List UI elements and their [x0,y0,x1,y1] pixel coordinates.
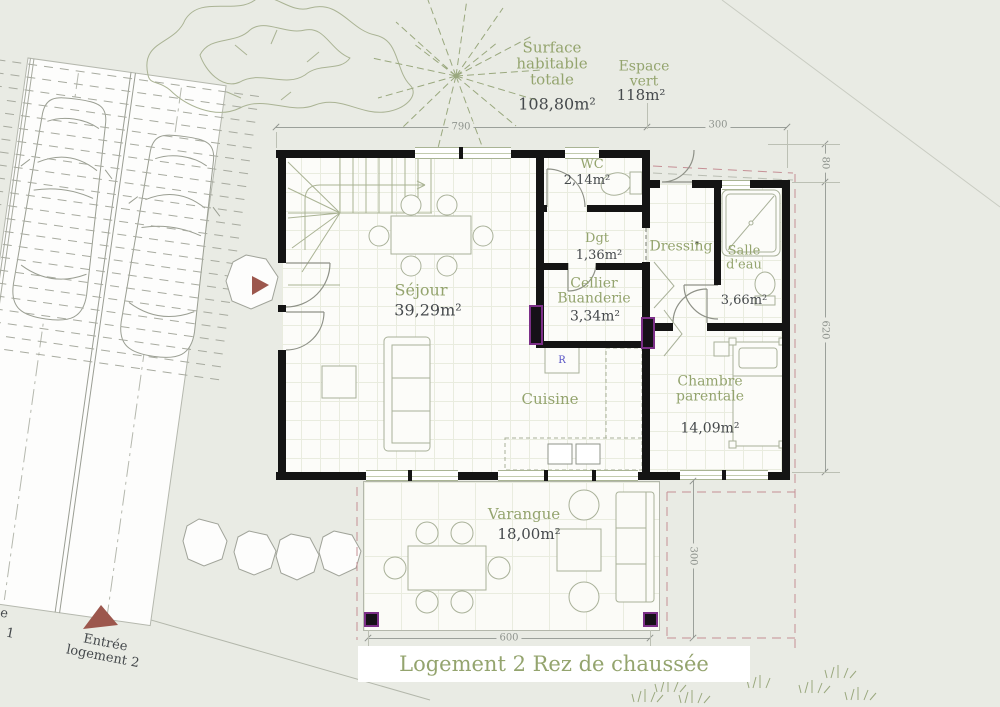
room-label-sejour: Séjour [395,283,448,300]
furniture-layer: R [0,0,1000,707]
dimension-line-right [825,144,826,472]
green-space-value: 118m² [617,88,666,104]
surface-total-label: Surface habitable totale [516,40,587,87]
window [415,147,511,159]
bedroom-door-swing [673,289,707,323]
outdoor-sofa [616,492,654,602]
wall [638,472,680,480]
wall [278,150,286,263]
extension-line [650,630,651,646]
room-label-dgt: Dgt [585,232,609,246]
wall [511,150,565,158]
dim-label-620: 620 [820,317,831,342]
extension-line [368,630,369,646]
wall [707,323,790,331]
room-area-varangue: 18,00m² [497,527,560,543]
surface-total-value: 108,80m² [518,97,596,114]
extension-line [792,472,840,473]
side-table [322,366,356,398]
green-space-label: Espace vert [619,59,670,88]
window-mullion [459,147,463,159]
wall [587,205,650,212]
room-area-salle-eau: 3,66m² [721,294,767,308]
dim-label-790: 790 [448,122,473,133]
sofa [384,337,430,451]
side-door-swing [286,312,324,350]
varangue-post [364,612,379,627]
varangue-dining-set [384,522,510,613]
bathroom-door-swing [684,285,718,319]
extension-line [768,144,840,145]
fridge-symbol: R [558,355,566,366]
room-label-chambre: Chambre parentale [676,374,744,403]
wall [536,205,547,212]
wall [642,150,650,228]
room-area-sejour: 39,29m² [394,303,461,320]
extension-line [276,132,277,148]
post [529,305,543,345]
wall [714,188,721,285]
wall [768,472,790,480]
room-label-wc: WC [580,158,603,172]
extension-line [792,182,840,183]
room-label-salle-eau: Salle d'eau [726,244,762,271]
wall [278,305,286,312]
dim-label-300-side: 300 [688,543,699,568]
dim-label-600: 600 [496,633,521,644]
room-label-varangue: Varangue [488,507,560,523]
wardrobe-chevrons [654,242,699,357]
page-title: Logement 2 Rez de chaussée [399,652,709,676]
wall [650,180,660,188]
window-mullion [722,470,726,480]
wall [278,350,286,472]
extension-line [787,130,788,168]
floor-plan-sheet: R [0,0,1000,707]
wall [276,472,366,480]
leader-line [647,103,648,129]
varangue-post [643,612,658,627]
room-label-cellier: Cellier Buanderie [557,276,630,305]
sliding-door [366,470,458,481]
wall [458,472,498,480]
dim-label-80: 80 [820,154,831,173]
window-mullion [592,470,596,481]
room-label-cuisine: Cuisine [522,392,579,408]
post [641,317,655,349]
room-label-dressing: Dressing [649,240,712,255]
varangue-lounge [557,490,654,612]
wall [276,150,415,158]
room-area-wc: 2,14m² [564,174,610,188]
window-mullion [408,470,412,481]
wall [536,263,568,270]
window [722,180,750,190]
room-area-dgt: 1,36m² [576,249,622,263]
dim-label-300-top: 300 [705,120,730,131]
title-banner: Logement 2 Rez de chaussée [358,646,750,682]
wall [692,180,722,188]
kitchen-sink [548,444,600,464]
sliding-door [498,470,638,481]
room-area-chambre: 14,09m² [681,422,740,437]
wall [596,263,650,270]
window-mullion [544,470,548,481]
room-area-cellier: 3,34m² [570,310,620,325]
wall [642,262,650,472]
dressing-ext-door-swing [662,150,694,182]
wall [750,180,782,188]
wall [536,341,650,348]
